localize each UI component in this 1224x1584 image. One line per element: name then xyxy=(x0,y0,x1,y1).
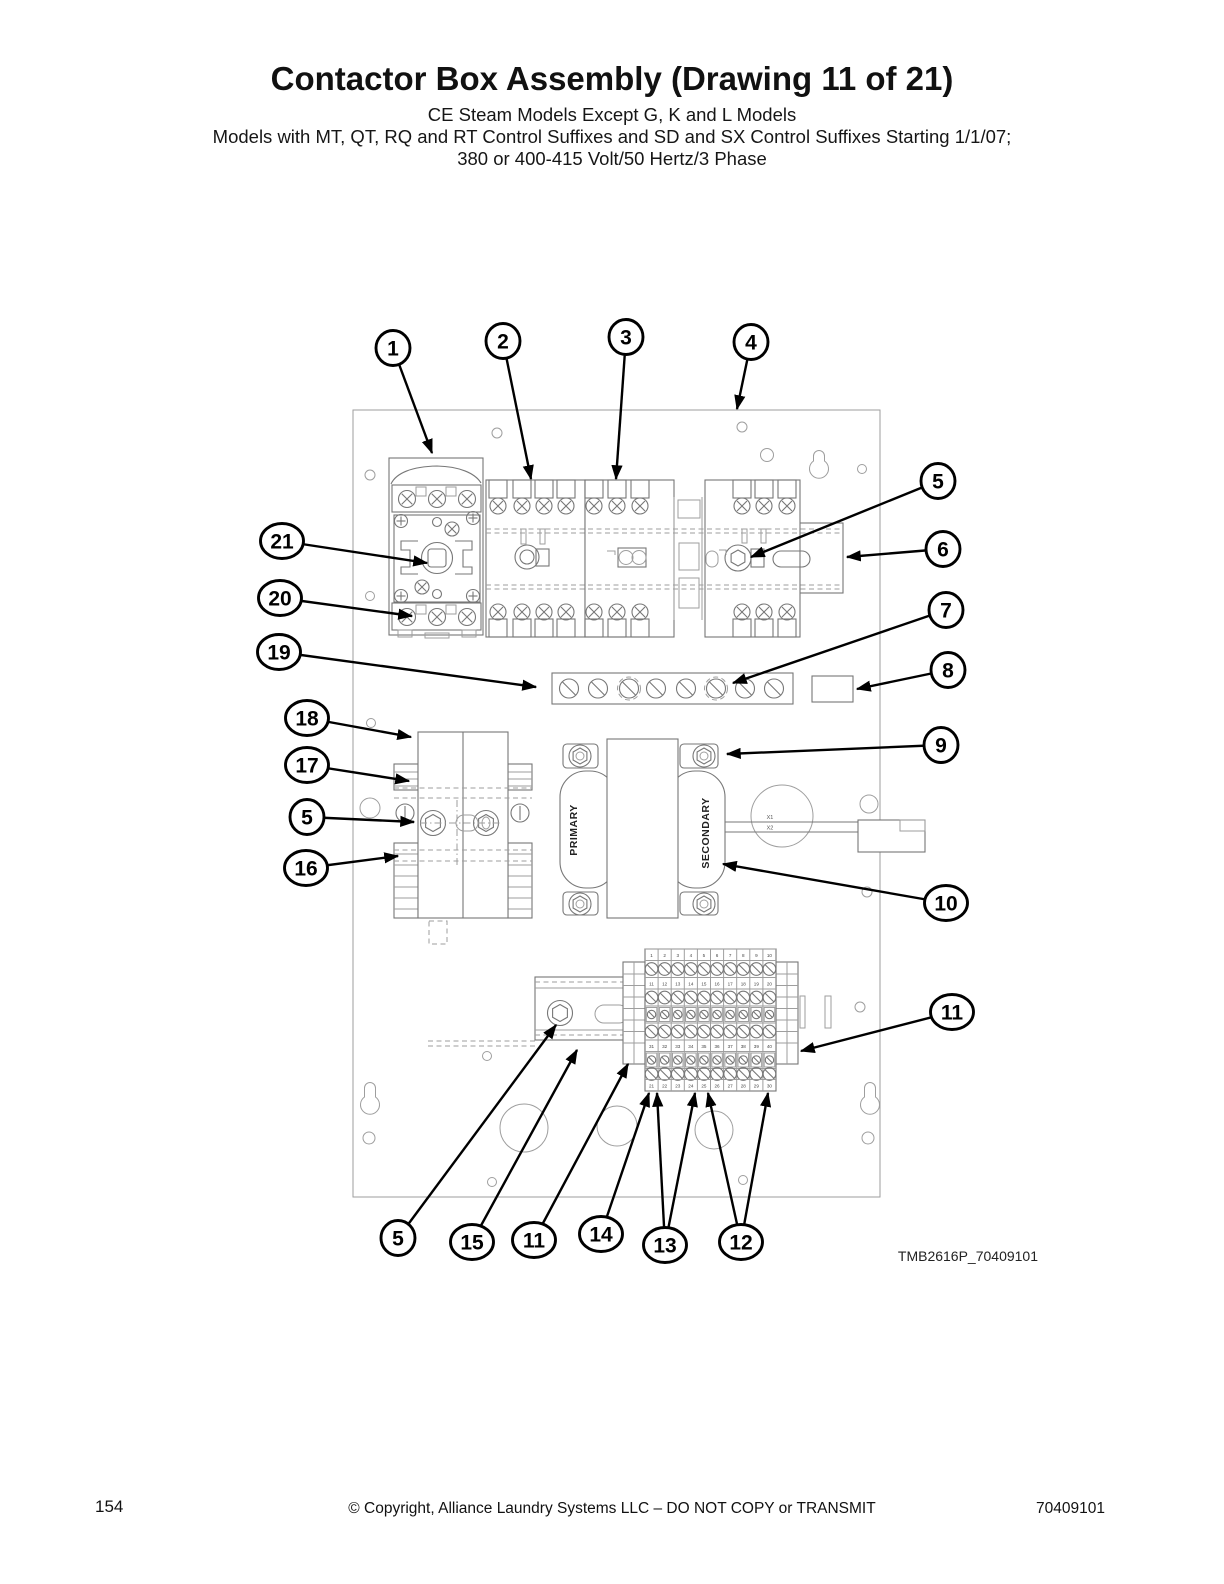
callout-number: 2 xyxy=(497,330,509,353)
bracket-plate xyxy=(678,500,700,518)
wire-label-x2: X2 xyxy=(767,826,774,832)
callout-number: 6 xyxy=(937,538,949,561)
svg-text:8: 8 xyxy=(742,953,745,958)
rail-clip xyxy=(825,996,831,1028)
svg-text:24: 24 xyxy=(688,1084,694,1089)
drawing-code: TMB2616P_70409101 xyxy=(898,1248,1038,1264)
callout-12: 12 xyxy=(708,1093,768,1260)
svg-text:33: 33 xyxy=(675,1044,681,1049)
keyhole-slot-right xyxy=(861,1083,880,1115)
callout-number: 11 xyxy=(941,1001,964,1024)
svg-text:27: 27 xyxy=(728,1084,734,1089)
svg-text:2: 2 xyxy=(663,953,666,958)
secondary-label: SECONDARY xyxy=(700,797,712,868)
svg-text:3: 3 xyxy=(676,953,679,958)
callout-number: 1 xyxy=(387,337,399,360)
svg-text:11: 11 xyxy=(649,982,654,987)
callout-17: 17 xyxy=(286,748,410,783)
callout-number: 15 xyxy=(460,1231,484,1254)
svg-text:15: 15 xyxy=(701,982,707,987)
svg-text:10: 10 xyxy=(767,953,773,958)
svg-text:22: 22 xyxy=(662,1084,668,1089)
callout-number: 21 xyxy=(270,530,294,553)
callout-number: 5 xyxy=(301,806,313,829)
svg-text:12: 12 xyxy=(662,982,668,987)
callout-6: 6 xyxy=(847,532,960,567)
callout-number: 10 xyxy=(934,892,957,915)
callout-9: 9 xyxy=(727,728,958,763)
wire-label-x1: X1 xyxy=(767,815,774,821)
bracket-plate xyxy=(679,578,699,608)
contactor-2 xyxy=(585,480,674,637)
disconnect-switch xyxy=(389,458,483,638)
svg-text:13: 13 xyxy=(675,982,681,987)
keyhole-slot-top xyxy=(810,451,829,479)
svg-text:16: 16 xyxy=(714,982,720,987)
callout-4: 4 xyxy=(734,325,768,410)
svg-text:6: 6 xyxy=(716,953,719,958)
callout-16: 16 xyxy=(285,851,399,886)
callout-number: 14 xyxy=(589,1223,613,1246)
callout-number: 16 xyxy=(294,857,317,880)
callout-8: 8 xyxy=(857,653,965,690)
callout-1: 1 xyxy=(376,331,432,454)
svg-text:26: 26 xyxy=(714,1084,720,1089)
svg-text:29: 29 xyxy=(754,1084,760,1089)
svg-text:17: 17 xyxy=(728,982,734,987)
svg-text:4: 4 xyxy=(690,953,693,958)
svg-text:7: 7 xyxy=(729,953,732,958)
svg-text:37: 37 xyxy=(728,1044,734,1049)
svg-text:21: 21 xyxy=(649,1084,655,1089)
svg-text:31: 31 xyxy=(649,1044,655,1049)
callout-3: 3 xyxy=(609,320,643,480)
callout-number: 7 xyxy=(940,599,952,622)
svg-text:19: 19 xyxy=(754,982,760,987)
transformer: PRIMARY SECONDARY X1 X2 xyxy=(560,739,925,918)
svg-text:34: 34 xyxy=(688,1044,694,1049)
contactor-box-drawing: PRIMARY SECONDARY X1 X2 1234567891011121… xyxy=(0,0,1224,1584)
callout-number: 5 xyxy=(392,1227,404,1250)
svg-text:38: 38 xyxy=(741,1044,747,1049)
callout-13: 13 xyxy=(644,1093,696,1263)
svg-text:39: 39 xyxy=(754,1044,760,1049)
svg-text:32: 32 xyxy=(662,1044,668,1049)
wire-connector xyxy=(858,820,925,852)
svg-text:36: 36 xyxy=(714,1044,720,1049)
callout-number: 13 xyxy=(653,1234,676,1257)
callout-11-right: 11 xyxy=(801,995,974,1052)
primary-label: PRIMARY xyxy=(568,804,580,856)
callout-10: 10 xyxy=(723,864,968,921)
svg-text:14: 14 xyxy=(688,982,694,987)
svg-text:9: 9 xyxy=(755,953,758,958)
svg-text:1: 1 xyxy=(650,953,653,958)
rail-clip xyxy=(800,996,805,1028)
bracket-plate xyxy=(679,543,699,570)
callout-number: 8 xyxy=(942,659,954,682)
callout-5-bottom: 5 xyxy=(381,1025,556,1256)
callout-number: 19 xyxy=(267,641,290,664)
knockout-hole xyxy=(751,785,813,847)
svg-text:5: 5 xyxy=(703,953,706,958)
callout-5-fuse: 5 xyxy=(290,800,414,835)
hidden-part-outline xyxy=(429,921,447,944)
callout-2: 2 xyxy=(486,324,531,480)
callout-number: 18 xyxy=(295,707,319,730)
callout-number: 5 xyxy=(932,470,944,493)
callout-number: 12 xyxy=(729,1231,752,1254)
din-rail-bottom xyxy=(428,977,628,1046)
callout-number: 11 xyxy=(523,1229,546,1252)
callout-number: 3 xyxy=(620,326,632,349)
core xyxy=(607,739,678,918)
callout-number: 20 xyxy=(268,587,291,610)
callout-18: 18 xyxy=(286,701,412,738)
callout-14: 14 xyxy=(580,1093,650,1252)
manual-page: { "page": { "title": "Contactor Box Asse… xyxy=(0,0,1224,1584)
terminal-block: 1234567891011121314151617181920313233343… xyxy=(645,949,776,1091)
svg-text:20: 20 xyxy=(767,982,773,987)
document-number: 70409101 xyxy=(1036,1500,1105,1518)
svg-text:35: 35 xyxy=(701,1044,707,1049)
callout-number: 9 xyxy=(935,734,947,757)
callout-19: 19 xyxy=(258,635,537,688)
callout-number: 17 xyxy=(295,754,318,777)
svg-text:40: 40 xyxy=(767,1044,773,1049)
fuse-holder-assembly xyxy=(394,732,532,944)
svg-text:18: 18 xyxy=(741,982,747,987)
end-bracket xyxy=(812,676,853,702)
svg-text:23: 23 xyxy=(675,1084,681,1089)
keyhole-slot-left xyxy=(361,1083,380,1115)
svg-text:28: 28 xyxy=(741,1084,747,1089)
callout-number: 4 xyxy=(745,331,757,354)
svg-text:25: 25 xyxy=(701,1084,707,1089)
svg-text:30: 30 xyxy=(767,1084,773,1089)
